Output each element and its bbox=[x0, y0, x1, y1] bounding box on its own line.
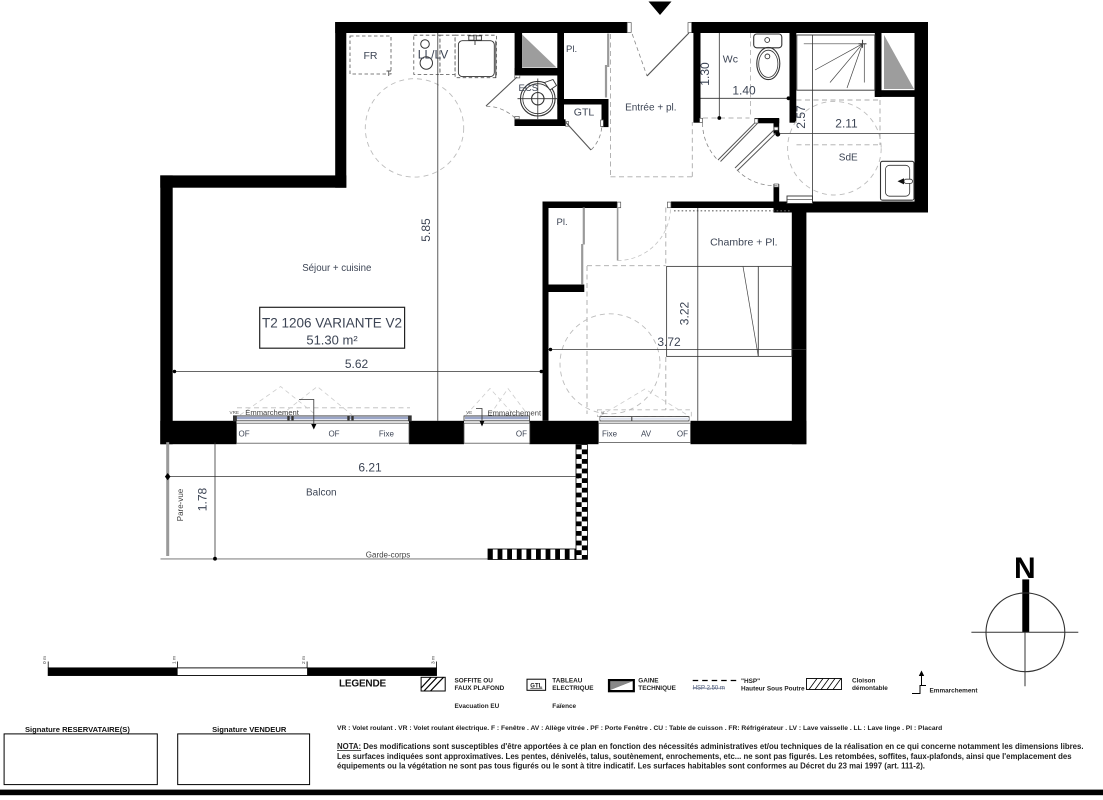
svg-text:équipements ou la végétation n: équipements ou la végétation ne sont pas… bbox=[337, 762, 925, 771]
svg-text:3.72: 3.72 bbox=[657, 335, 681, 349]
svg-text:1.78: 1.78 bbox=[196, 487, 210, 511]
svg-text:démontable: démontable bbox=[852, 685, 888, 692]
svg-text:VE: VE bbox=[466, 410, 472, 415]
svg-text:3 m: 3 m bbox=[430, 656, 436, 664]
svg-text:Signature VENDEUR: Signature VENDEUR bbox=[212, 725, 287, 734]
svg-text:1 m: 1 m bbox=[171, 656, 177, 664]
svg-text:Pare-vue: Pare-vue bbox=[176, 488, 185, 521]
svg-text:Fixe: Fixe bbox=[602, 430, 618, 439]
svg-text:Signature RESERVATAIRE(S): Signature RESERVATAIRE(S) bbox=[25, 725, 130, 734]
svg-text:vr: vr bbox=[601, 410, 605, 415]
svg-text:FR: FR bbox=[364, 50, 378, 62]
svg-text:OF: OF bbox=[516, 430, 527, 439]
svg-text:Emmarchement: Emmarchement bbox=[488, 409, 542, 418]
svg-text:FAUX PLAFOND: FAUX PLAFOND bbox=[455, 685, 505, 692]
svg-text:1.30: 1.30 bbox=[698, 62, 712, 86]
svg-text:OF: OF bbox=[328, 430, 339, 439]
svg-text:GTL: GTL bbox=[574, 107, 595, 119]
svg-text:ECS: ECS bbox=[519, 83, 539, 94]
svg-text:TABLEAU: TABLEAU bbox=[552, 678, 582, 685]
svg-text:LL/LV: LL/LV bbox=[418, 48, 448, 62]
svg-text:SOFFITE OU: SOFFITE OU bbox=[455, 678, 494, 685]
svg-text:6.21: 6.21 bbox=[358, 461, 382, 475]
svg-text:"HSP": "HSP" bbox=[741, 678, 760, 685]
svg-text:Pl.: Pl. bbox=[566, 44, 577, 55]
svg-text:VR : Volet roulant . VR : Vole: VR : Volet roulant . VR : Volet roulant … bbox=[337, 725, 942, 732]
svg-text:2 m: 2 m bbox=[301, 656, 307, 664]
svg-text:Fixe: Fixe bbox=[379, 430, 395, 439]
svg-text:Evacuation EU: Evacuation EU bbox=[455, 703, 500, 710]
svg-text:SdE: SdE bbox=[839, 153, 858, 164]
svg-text:HSP 2.50 m: HSP 2.50 m bbox=[693, 686, 725, 692]
svg-text:Faïence: Faïence bbox=[552, 703, 576, 710]
svg-text:ELECTRIQUE: ELECTRIQUE bbox=[552, 685, 594, 692]
svg-text:Wc: Wc bbox=[723, 54, 738, 66]
svg-text:TECHNIQUE: TECHNIQUE bbox=[638, 685, 676, 692]
svg-text:Chambre + Pl.: Chambre + Pl. bbox=[710, 237, 777, 249]
svg-text:Séjour + cuisine: Séjour + cuisine bbox=[302, 263, 371, 274]
svg-text:1.40: 1.40 bbox=[732, 84, 756, 98]
svg-text:Garde-corps: Garde-corps bbox=[366, 551, 410, 560]
svg-text:VRE: VRE bbox=[230, 410, 239, 415]
svg-text:2.11: 2.11 bbox=[835, 117, 858, 131]
svg-text:5.85: 5.85 bbox=[419, 218, 433, 242]
svg-text:2.57: 2.57 bbox=[794, 105, 808, 129]
svg-text:Emmarchement: Emmarchement bbox=[930, 688, 979, 695]
svg-text:5.62: 5.62 bbox=[345, 357, 369, 371]
svg-text:Les surfaces indiquées sont ap: Les surfaces indiquées sont approximativ… bbox=[337, 752, 1072, 761]
svg-text:Pl.: Pl. bbox=[557, 217, 568, 228]
svg-text:GAINE: GAINE bbox=[638, 678, 659, 685]
svg-text:Entrée + pl.: Entrée + pl. bbox=[625, 103, 676, 114]
svg-text:OF: OF bbox=[239, 430, 250, 439]
svg-text:LEGENDE: LEGENDE bbox=[339, 679, 386, 690]
svg-text:GTL: GTL bbox=[530, 683, 542, 689]
svg-text:AV: AV bbox=[641, 430, 652, 439]
svg-text:Cloison: Cloison bbox=[852, 678, 876, 685]
svg-text:Emmarchement: Emmarchement bbox=[245, 408, 299, 417]
svg-text:OF: OF bbox=[677, 430, 688, 439]
svg-text:Hauteur Sous Poutre: Hauteur Sous Poutre bbox=[741, 686, 805, 693]
svg-text:NOTA: Des modifications sont s: NOTA: Des modifications sont susceptible… bbox=[337, 742, 1084, 751]
svg-text:3.22: 3.22 bbox=[678, 301, 692, 325]
svg-text:0 m: 0 m bbox=[42, 656, 48, 664]
svg-text:T2 1206 VARIANTE V2: T2 1206 VARIANTE V2 bbox=[262, 316, 402, 331]
svg-text:Balcon: Balcon bbox=[306, 488, 337, 499]
svg-text:51.30 m²: 51.30 m² bbox=[306, 333, 358, 348]
